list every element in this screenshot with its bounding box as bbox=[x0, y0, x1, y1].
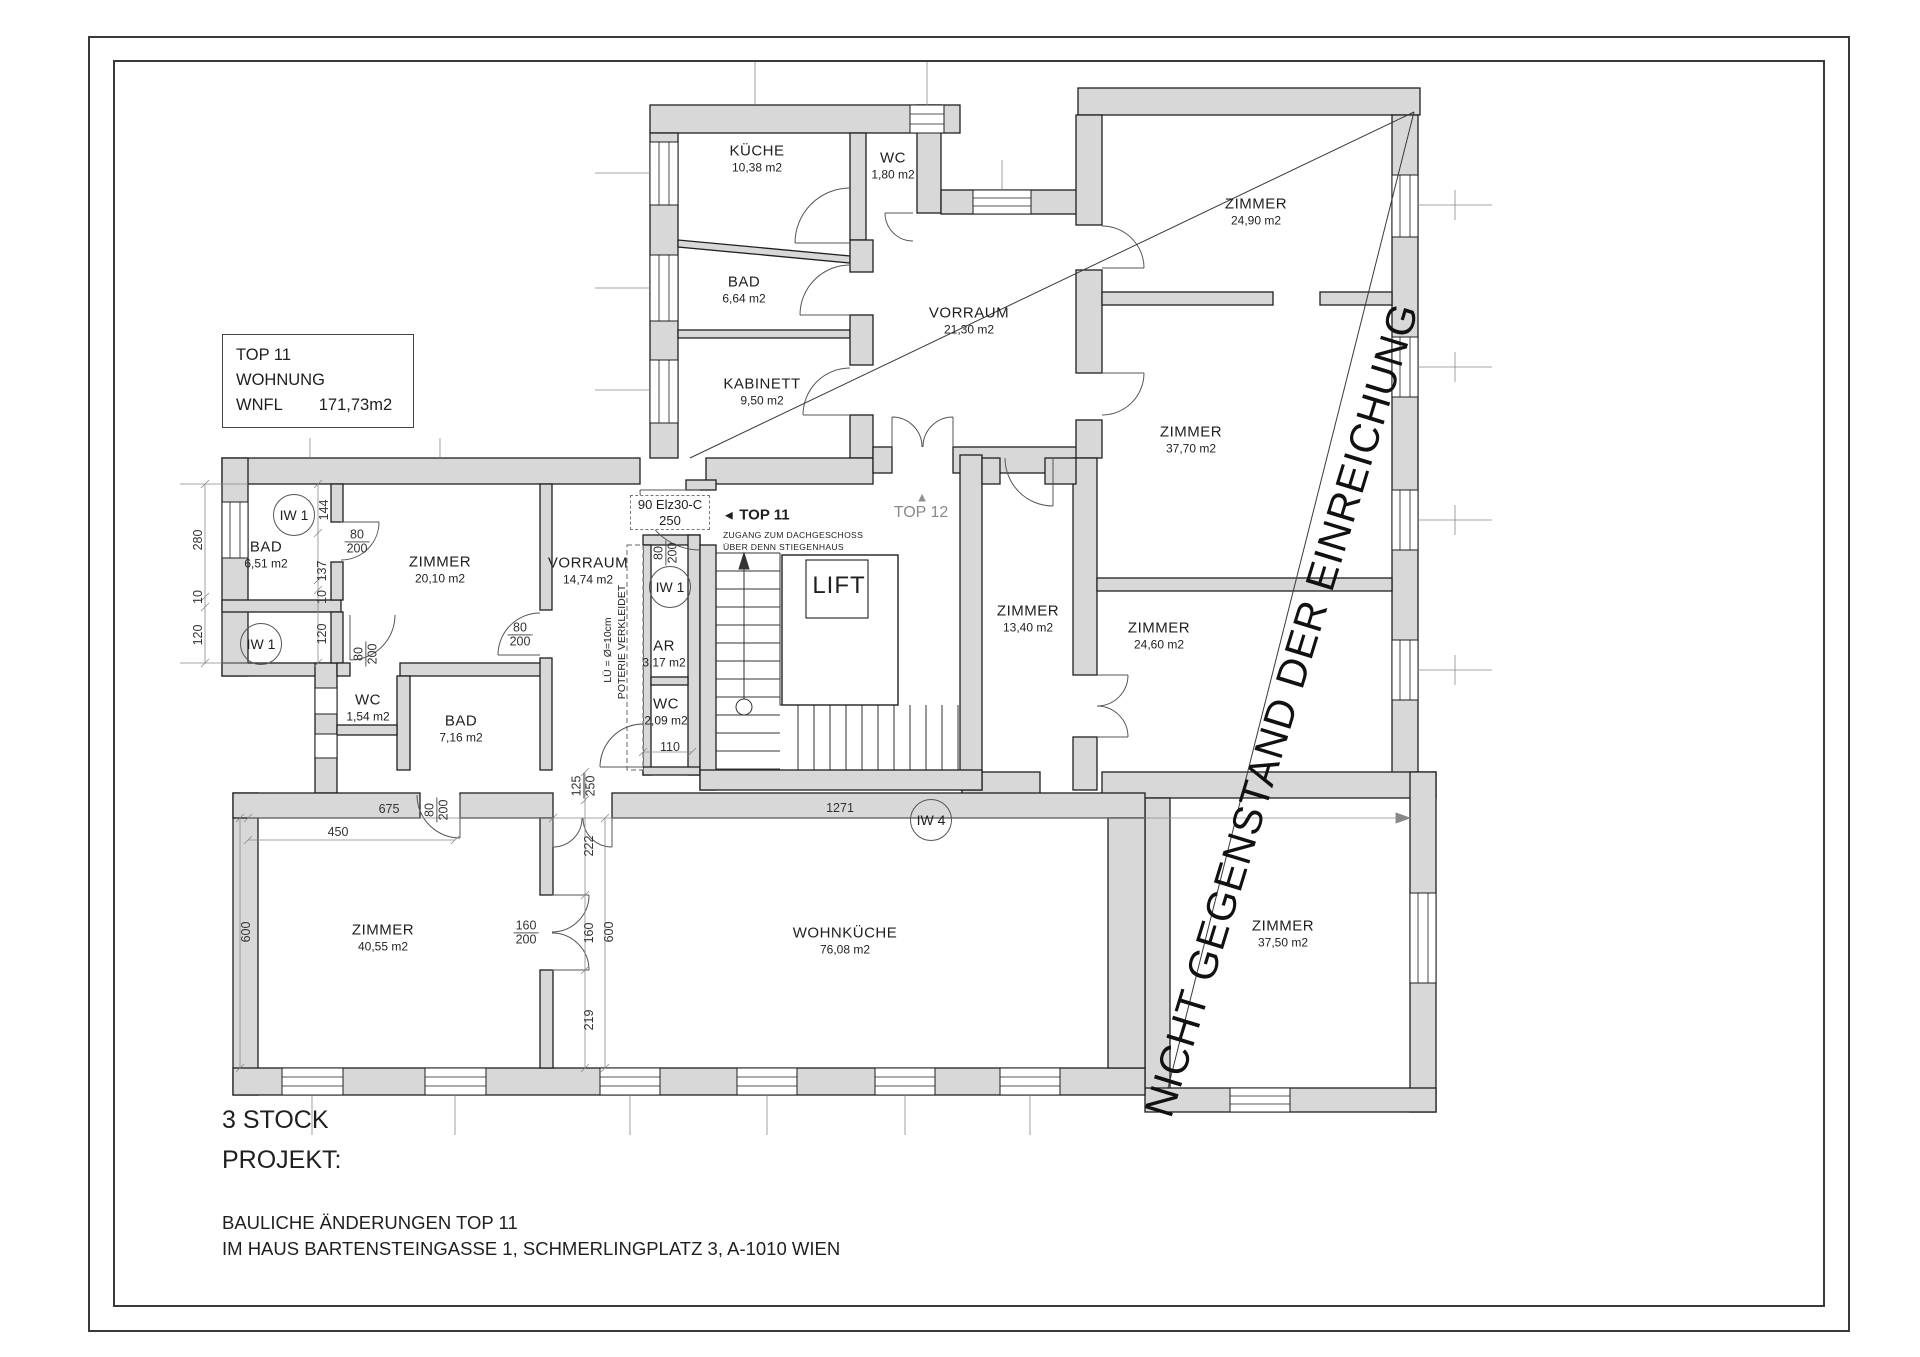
top11-entry-marker: ◄TOP 11 bbox=[722, 507, 789, 524]
ventilation-shaft bbox=[627, 545, 643, 770]
title-top: TOP 11 bbox=[236, 343, 413, 368]
room-label-zimmer-3750: ZIMMER37,50 m2 bbox=[1252, 917, 1314, 950]
dim-144: 144 bbox=[317, 500, 331, 521]
dim-120: 120 bbox=[191, 625, 205, 646]
dim-120: 120 bbox=[315, 624, 329, 645]
title-wnfl: WNFL171,73m2 bbox=[236, 393, 413, 418]
floorplan-page: TOP 11 WOHNUNG WNFL171,73m2 KÜCHE10,38 m… bbox=[0, 0, 1920, 1357]
room-label-wc-154: WC1,54 m2 bbox=[346, 691, 389, 724]
room-label-wc-209: WC2,09 m2 bbox=[644, 695, 687, 728]
project-line1: BAULICHE ÄNDERUNGEN TOP 11 bbox=[222, 1212, 518, 1234]
dim-450: 450 bbox=[328, 825, 349, 839]
iw1-badge: IW 1 bbox=[649, 566, 691, 608]
zugang-note: ZUGANG ZUM DACHGESCHOSS ÜBER DENN STIEGE… bbox=[723, 529, 863, 554]
dim-600: 600 bbox=[602, 922, 616, 943]
dim-160: 160 bbox=[582, 923, 596, 944]
room-label-zimmer-2010: ZIMMER20,10 m2 bbox=[409, 553, 471, 586]
dim-222: 222 bbox=[582, 836, 596, 857]
dim-219: 219 bbox=[582, 1010, 596, 1031]
dim-door-125-250: 125250 bbox=[570, 774, 597, 799]
room-label-ar: AR3,17 m2 bbox=[642, 637, 685, 670]
iw1-badge: IW 1 bbox=[240, 623, 282, 665]
dim-10: 10 bbox=[315, 590, 329, 604]
room-label-zimmer-2490: ZIMMER24,90 m2 bbox=[1225, 195, 1287, 228]
dim-280: 280 bbox=[191, 530, 205, 551]
project-label: PROJEKT: bbox=[222, 1146, 341, 1175]
arrow-left-icon: ◄ bbox=[722, 508, 735, 523]
room-label-bad-664: BAD6,64 m2 bbox=[722, 273, 765, 306]
dim-door-160-200: 160200 bbox=[514, 919, 539, 946]
iw1-badge: IW 1 bbox=[273, 494, 315, 536]
dim-675: 675 bbox=[379, 802, 400, 816]
room-label-wohnkueche: WOHNKÜCHE76,08 m2 bbox=[793, 924, 898, 957]
room-label-bad-651: BAD6,51 m2 bbox=[244, 538, 287, 571]
title-box: TOP 11 WOHNUNG WNFL171,73m2 bbox=[222, 334, 414, 428]
room-label-kueche: KÜCHE10,38 m2 bbox=[729, 142, 784, 175]
dim-600: 600 bbox=[239, 922, 253, 943]
dim-door-80-200: 80200 bbox=[652, 541, 679, 566]
project-line2: IM HAUS BARTENSTEINGASSE 1, SCHMERLINGPL… bbox=[222, 1238, 840, 1260]
dim-10: 10 bbox=[191, 590, 205, 604]
room-label-vorraum-1474: VORRAUM14,74 m2 bbox=[548, 554, 628, 587]
shaft-note-poterie: POTERIE VERKLEIDET bbox=[616, 585, 628, 699]
dim-door-80-200: 80200 bbox=[345, 528, 370, 555]
room-label-lift: LIFT bbox=[812, 572, 865, 600]
top12-label: TOP 12 bbox=[894, 504, 949, 522]
room-label-zimmer-4055: ZIMMER40,55 m2 bbox=[352, 921, 414, 954]
room-label-zimmer-2460: ZIMMER24,60 m2 bbox=[1128, 619, 1190, 652]
dim-door-80-200: 80200 bbox=[423, 798, 450, 823]
room-label-vorraum-2130: VORRAUM21,30 m2 bbox=[929, 304, 1009, 337]
floor-label: 3 STOCK bbox=[222, 1106, 329, 1135]
entry-door-spec: 90 Elz30-C 250 bbox=[630, 495, 710, 530]
shaft-note-lue: LÜ = Ø=10cm bbox=[602, 617, 614, 682]
dim-137: 137 bbox=[315, 561, 329, 582]
dim-1271: 1271 bbox=[826, 801, 854, 815]
iw4-badge: IW 4 bbox=[910, 799, 952, 841]
dim-110: 110 bbox=[660, 740, 680, 754]
room-label-bad-716: BAD7,16 m2 bbox=[439, 712, 482, 745]
title-type: WOHNUNG bbox=[236, 368, 413, 393]
arrow-up-icon: ▲ bbox=[916, 490, 929, 505]
room-label-kabinett: KABINETT9,50 m2 bbox=[723, 375, 800, 408]
dim-door-80-200: 80200 bbox=[352, 642, 379, 667]
room-label-zimmer-3770: ZIMMER37,70 m2 bbox=[1160, 423, 1222, 456]
room-label-wc-180: WC1,80 m2 bbox=[871, 149, 914, 182]
dim-door-80-200: 80200 bbox=[508, 621, 533, 648]
room-label-zimmer-1340: ZIMMER13,40 m2 bbox=[997, 602, 1059, 635]
